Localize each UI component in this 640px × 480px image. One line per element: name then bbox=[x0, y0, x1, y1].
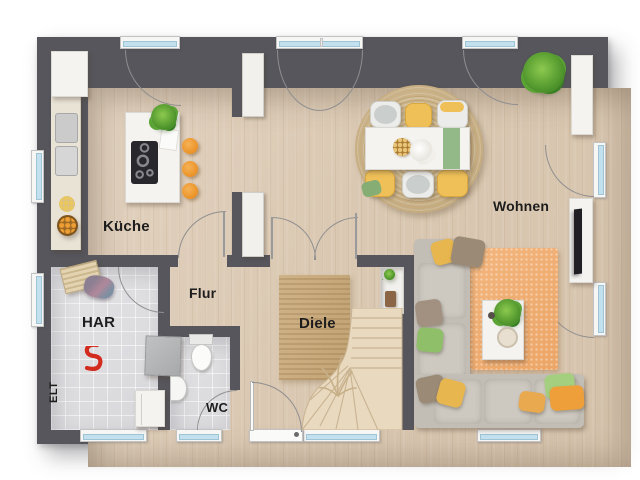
dining-chair-4 bbox=[365, 170, 395, 197]
room-label-wc: WC bbox=[206, 400, 228, 415]
coffee-cup-icon bbox=[488, 312, 495, 319]
niche-bag-icon bbox=[385, 291, 396, 307]
bar-stool-2 bbox=[182, 161, 198, 177]
centerpiece-bowl-icon bbox=[393, 138, 411, 156]
wall-stub-upper bbox=[232, 51, 242, 117]
table-runner bbox=[443, 128, 460, 169]
sink-basin-2 bbox=[55, 146, 78, 176]
window-har-left bbox=[31, 273, 44, 327]
tall-cabinet-lower bbox=[242, 192, 264, 257]
window-kitchen-left bbox=[31, 150, 44, 203]
room-label-har: HAR bbox=[82, 314, 115, 331]
sideboard bbox=[571, 55, 593, 135]
centerpiece-flowers-icon bbox=[410, 139, 433, 162]
chair-throw-green bbox=[360, 179, 382, 198]
cooktop-icon bbox=[131, 141, 158, 184]
room-label-diele: Diele bbox=[299, 315, 336, 332]
red-valve-icon bbox=[82, 346, 106, 372]
window-wc-bottom bbox=[176, 429, 222, 442]
floor-plan-canvas: Küche Wohnen HAR Flur Diele WC ELT bbox=[0, 0, 640, 480]
door-handle-icon bbox=[294, 432, 299, 437]
tall-cabinet-upper bbox=[242, 53, 264, 117]
washing-machine bbox=[144, 335, 181, 376]
window-kitchen-top bbox=[120, 36, 180, 49]
kitchen-tall-cabinet bbox=[51, 51, 88, 97]
niche-plant-icon bbox=[384, 269, 395, 280]
room-label-elt: ELT bbox=[48, 382, 60, 403]
wall-stub-lower bbox=[232, 192, 242, 255]
decor-grass-icon bbox=[316, 334, 360, 400]
fruit-bowl-icon bbox=[57, 215, 78, 236]
wall-wc-east bbox=[230, 337, 240, 390]
dining-chair-6 bbox=[437, 170, 468, 197]
window-living-right-lower bbox=[593, 282, 606, 336]
island-plant-icon bbox=[151, 104, 177, 130]
dining-chair-1 bbox=[370, 101, 401, 128]
dining-chair-5 bbox=[402, 171, 434, 198]
sidelight-front-door bbox=[303, 429, 380, 442]
sink-basin-1 bbox=[55, 113, 78, 143]
flower-sprig-icon bbox=[59, 196, 75, 212]
cutting-board-icon bbox=[159, 128, 180, 151]
room-label-kueche: Küche bbox=[103, 218, 150, 235]
dining-chair-2 bbox=[405, 103, 432, 129]
window-living-bottom bbox=[477, 429, 541, 442]
pillow-orange-seat-1 bbox=[518, 390, 547, 413]
coffee-tray-icon bbox=[497, 327, 518, 348]
coffee-table-plant-icon bbox=[494, 299, 521, 326]
dining-chair-3 bbox=[437, 100, 468, 129]
pillow-green-mid bbox=[416, 327, 444, 353]
corner-plant-icon bbox=[523, 52, 565, 93]
bar-stool-1 bbox=[182, 138, 198, 154]
pillow-brown-top bbox=[450, 235, 486, 268]
room-label-flur: Flur bbox=[189, 285, 216, 301]
window-living-right-upper bbox=[593, 142, 606, 198]
kitchen-door-leaf bbox=[223, 211, 225, 257]
double-door-leaf-left bbox=[271, 217, 273, 259]
window-dining-top bbox=[276, 36, 363, 49]
bar-stool-3 bbox=[182, 183, 198, 199]
pillow-brown-mid bbox=[414, 298, 443, 327]
pillow-orange-seat-2 bbox=[549, 385, 585, 411]
dryer-appliance bbox=[135, 390, 165, 427]
window-har-bottom bbox=[80, 429, 147, 442]
double-door-leaf-right bbox=[355, 213, 357, 259]
wall-dining-south bbox=[357, 255, 414, 267]
window-living-top bbox=[462, 36, 518, 49]
chair-throw-yellow bbox=[440, 102, 464, 112]
tv-icon bbox=[574, 209, 582, 275]
room-label-wohnen: Wohnen bbox=[493, 198, 549, 214]
